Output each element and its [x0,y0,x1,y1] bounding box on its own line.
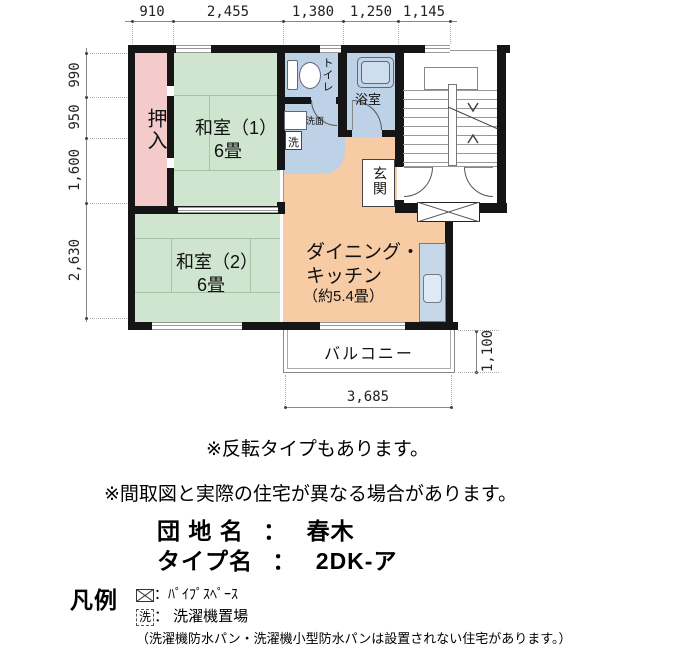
toilet-bowl [299,62,321,89]
note-difference: ※間取図と実際の住宅が異なる場合があります。 [104,479,517,506]
wall-segment [211,45,321,53]
dimension-line-left [86,48,87,322]
dimension-tick [450,406,453,409]
dim-left-1: 990 [67,62,83,87]
legend-title: 凡例 [70,581,118,615]
fusuma [178,207,278,213]
window [176,45,211,53]
dimension-tick [397,20,400,23]
dim-top-2: 2,455 [207,4,249,20]
dimension-tick [131,20,134,23]
extension-line [451,375,452,405]
washitsu2-size: 6畳 [197,271,225,297]
door-leaf [283,170,284,202]
washer-space-icon: 洗 [136,609,154,626]
stair-direction-arrow [446,93,500,151]
extension-line [458,372,499,373]
dimension-tick [85,202,88,205]
wall-segment [128,45,176,53]
wall-segment [338,53,347,137]
colon: ： [272,548,296,574]
wall-segment [338,130,352,137]
extension-line [343,25,344,44]
wall-segment [341,45,404,53]
genkan-label: 玄関 [370,166,390,196]
legend-pipe-row: ：ﾊﾟｲﾌﾟｽﾍﾟｰｽ [136,584,238,604]
window [152,322,242,330]
dim-left-4: 2,630 [67,239,83,281]
window [320,45,341,53]
pipe-space-box [417,202,480,222]
dim-top-4: 1,250 [350,4,392,20]
washer-space-label: 洗 [288,134,299,150]
washbasin-label: 洗面 [306,114,324,127]
balcony-label: バルコニー [283,340,455,364]
pipe-space-icon [136,589,154,602]
type-name-row: タイプ名 ： 2DK-ア [157,542,397,576]
toilet-tank [287,60,298,90]
tatami-line [135,238,280,239]
dimension-tick [85,317,88,320]
dim-top-1: 910 [139,4,164,20]
colon: ： [263,518,287,544]
washbasin [284,111,307,130]
closet-label: 押入 [141,108,170,152]
dim-top-5: 1,145 [403,4,445,20]
toilet-label: トイレ [319,57,335,93]
dimension-tick [449,20,452,23]
extension-line [90,203,127,204]
legend-pipe-label: ：ﾊﾟｲﾌﾟｽﾍﾟｰｽ [154,586,238,602]
dimension-tick [172,20,175,23]
dim-top-3: 1,380 [292,4,334,20]
legend-washer-row: 洗： 洗濯機置場 [136,605,248,626]
dimension-line-bottom [285,407,451,408]
extension-line [90,318,127,319]
extension-line [173,25,174,44]
bathtub-inner [361,61,390,84]
washitsu1-size: 6畳 [214,137,242,163]
fusuma-gap [167,158,174,168]
dimension-tick [85,52,88,55]
type-name-value: 2DK-ア [316,548,398,574]
legend-note: （洗濯機防水パン・洗濯機小型防水パンは設置されない住宅があります。） [136,628,572,647]
extension-line [90,53,127,54]
estate-name-label: 団 地 名 [157,518,244,544]
wall-segment [242,322,320,330]
dimension-tick [284,406,287,409]
dimension-tick [282,20,285,23]
extension-line [285,375,286,405]
estate-name-row: 団 地 名 ： 春木 [157,512,355,546]
dk-label-line1: ダイニング・ [306,237,420,264]
dim-left-2: 950 [67,104,83,129]
balcony-door [320,322,405,330]
legend-washer-label: ： 洗濯機置場 [154,608,248,625]
dim-bottom: 3,685 [347,389,389,405]
wall-segment [128,322,152,330]
wall-segment [277,202,285,214]
floor-plan-page: バルコニー 押入 和室（1） 6畳 トイレ 浴室 洗面 洗 玄関 和室（2） 6… [0,0,700,650]
extension-line [398,25,399,44]
wall-segment [128,45,135,330]
wall-segment [277,45,285,170]
dim-left-3: 1,600 [67,149,83,191]
extension-line [283,25,284,44]
dimension-line-right [476,331,477,373]
note-flip-type: ※反転タイプもあります。 [206,434,429,461]
dimension-tick [342,20,345,23]
extension-line [132,25,133,44]
type-name-label: タイプ名 [157,548,253,574]
dimension-tick [85,96,88,99]
estate-name-value: 春木 [307,518,355,544]
extension-line [90,97,127,98]
tatami-line [171,238,172,293]
extension-line [450,25,451,44]
bath-label: 浴室 [355,89,381,108]
dk-label-size: （約5.4畳） [303,285,384,306]
tatami-line [174,170,280,171]
extension-line [90,138,127,139]
dim-right: 1,100 [480,330,496,372]
dimension-tick [85,137,88,140]
tatami-line [174,95,280,96]
dk-label-line2: キッチン [306,261,382,288]
wall-segment [285,97,311,104]
fusuma-gap [167,86,174,96]
